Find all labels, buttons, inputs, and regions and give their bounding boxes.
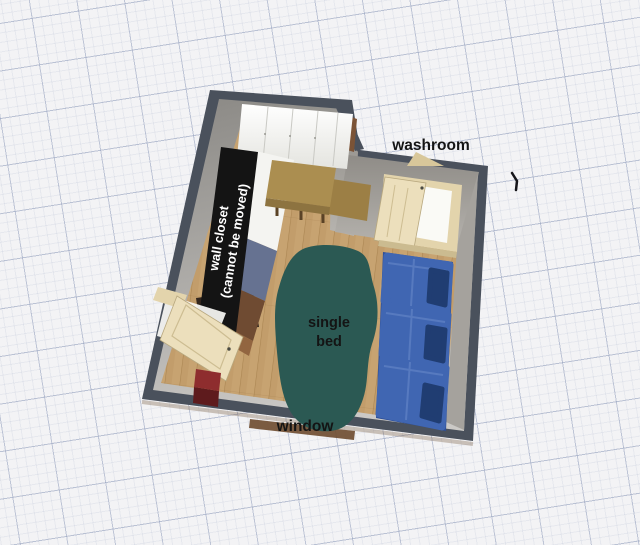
sofa[interactable]	[376, 252, 453, 431]
label-single-bed-2: bed	[316, 334, 342, 350]
door-top-edge	[407, 152, 444, 166]
label-single-bed-1: single	[308, 315, 350, 331]
label-window: window	[276, 418, 335, 435]
label-washroom: washroom	[391, 137, 470, 154]
room-scene: wall closet (cannot be moved)	[0, 0, 640, 545]
cursor-mark	[512, 173, 517, 190]
red-stool[interactable]	[193, 369, 221, 407]
door-handle	[420, 186, 423, 189]
desk-return[interactable]	[328, 179, 371, 221]
planner-canvas[interactable]: wall closet (cannot be moved)	[0, 0, 640, 545]
entry-door-handle	[227, 347, 230, 350]
